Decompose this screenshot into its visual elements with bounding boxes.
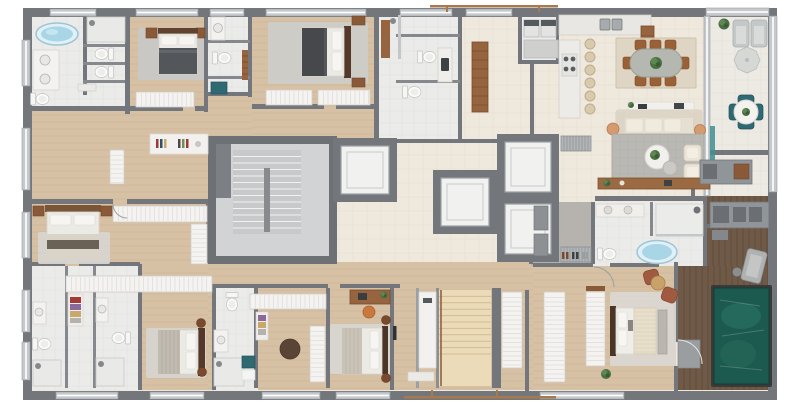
shoe-pair <box>586 252 589 259</box>
pouf <box>382 316 391 325</box>
glass-partition-teal <box>710 126 715 164</box>
outer-wall-bottom <box>23 391 777 400</box>
nightstand <box>146 28 157 38</box>
bed-pillow <box>332 31 342 50</box>
toilet <box>33 338 52 350</box>
bed-headboard <box>382 326 388 374</box>
wall <box>530 60 534 142</box>
elevator-2-cab <box>441 178 489 226</box>
wall-bath-divider <box>396 34 460 37</box>
shoe-pair <box>582 252 585 259</box>
wall-tv <box>393 326 397 340</box>
shower-glass <box>398 15 401 59</box>
pergola-line-bottom <box>404 396 556 399</box>
wall <box>525 290 529 391</box>
tv <box>638 104 647 109</box>
deck-step-platform <box>678 340 700 368</box>
pergola-tick <box>431 390 433 396</box>
wardrobe <box>502 292 522 368</box>
window <box>22 212 30 258</box>
bed-pillow <box>179 36 195 45</box>
grill-unit <box>749 207 762 222</box>
teal-cabinet <box>211 82 227 94</box>
side-round-table <box>663 161 677 175</box>
wardrobe <box>191 224 207 264</box>
wall-wc-divider <box>83 80 125 83</box>
nightstand <box>352 78 365 87</box>
sink-basin <box>40 74 50 84</box>
armchair-cushion <box>687 167 698 177</box>
wall <box>518 13 522 63</box>
wardrobe <box>544 292 565 382</box>
toilet <box>112 332 131 344</box>
hall-bench <box>408 372 434 381</box>
shower-head <box>390 18 396 24</box>
sofa-cushion <box>664 119 681 132</box>
window <box>22 128 30 190</box>
bed-blanket <box>634 308 656 354</box>
wardrobe <box>266 90 312 105</box>
hamper <box>242 370 255 380</box>
burner <box>571 67 576 72</box>
grill-unit <box>733 207 746 222</box>
side-table <box>607 123 619 135</box>
sink-basin <box>214 24 223 33</box>
folded-towel-purple <box>70 304 81 310</box>
bed-headboard <box>45 205 101 212</box>
bar-stool <box>585 52 595 62</box>
sideboard-plant <box>604 180 611 187</box>
grill-unit <box>713 206 729 223</box>
bed-headboard <box>344 26 351 78</box>
shower-head <box>216 361 222 367</box>
sink-basin-dark <box>441 58 449 71</box>
shoe-pair <box>566 252 569 259</box>
bed-duvet-fold <box>324 28 327 76</box>
wall <box>31 106 127 111</box>
balcony-rail-right <box>769 16 777 192</box>
sink-basin <box>35 308 43 316</box>
window <box>56 392 118 399</box>
wall <box>195 106 208 111</box>
wall <box>127 199 210 204</box>
balcony-rail-top <box>706 8 769 16</box>
dining-centerpiece-plant <box>650 57 662 69</box>
book <box>160 139 163 148</box>
bed-pillow <box>50 215 71 225</box>
wardrobe <box>113 206 207 222</box>
sofa-cushion <box>626 119 643 132</box>
console-decor <box>195 141 201 147</box>
towel-ladder <box>242 50 248 80</box>
bed-duvet <box>302 28 326 76</box>
wall-wc-divider <box>83 44 125 47</box>
wall-wc-divider <box>83 62 125 65</box>
grill-wood-cabinet <box>734 164 749 179</box>
shower-head <box>98 361 104 367</box>
utility-box <box>712 230 728 240</box>
sofa-back <box>616 110 702 118</box>
shower-glass <box>656 234 703 237</box>
bed-duvet <box>342 328 362 374</box>
bathtub-highlight <box>46 29 58 35</box>
bed-duvet <box>158 330 180 374</box>
private-stair-floor <box>439 290 491 386</box>
toilet <box>418 51 437 63</box>
folded-towel-red <box>70 297 81 303</box>
bathtub-water <box>642 244 672 260</box>
bed-pillow <box>332 52 342 71</box>
stair-core-wall-top <box>208 136 337 144</box>
pergola-tick <box>496 390 498 396</box>
toilet <box>95 48 114 60</box>
washer-top <box>524 20 539 26</box>
bed-throw <box>47 240 99 249</box>
window <box>262 392 320 399</box>
nightstand <box>33 206 44 216</box>
window <box>336 392 390 399</box>
wall-laundry <box>518 60 560 64</box>
vanity-counter <box>596 204 644 217</box>
folded-towel-tan <box>258 322 266 328</box>
wall <box>248 13 252 97</box>
window <box>136 9 198 16</box>
desk-chair <box>363 306 375 318</box>
plant-pot <box>601 369 611 379</box>
wall <box>326 288 330 388</box>
round-wood-table <box>651 276 665 290</box>
wall <box>458 13 462 142</box>
bed-pillow <box>370 331 379 349</box>
wardrobe <box>250 294 326 309</box>
folded-towel-gray <box>258 329 266 335</box>
wall-bath-divider <box>650 202 653 236</box>
pouf <box>197 319 206 328</box>
folded-towel-tan <box>70 311 81 317</box>
sideboard <box>598 178 710 189</box>
wall <box>533 263 593 267</box>
sink-basin <box>40 55 50 65</box>
wardrobe <box>586 292 605 366</box>
bar-stool <box>585 78 595 88</box>
toilet <box>598 248 617 260</box>
folded-towel-purple <box>258 315 266 321</box>
cabinet-handle <box>423 298 432 303</box>
wall <box>31 199 113 204</box>
book <box>156 139 159 148</box>
bed-pillow <box>74 215 95 225</box>
coffee-table-plant <box>650 150 660 160</box>
wardrobe <box>310 326 325 382</box>
book <box>186 139 189 148</box>
sink-basin <box>624 206 632 214</box>
bed-pillow <box>186 333 196 350</box>
wall <box>703 196 707 266</box>
sideboard-box <box>664 180 672 186</box>
console-plant <box>628 102 634 108</box>
bed-pillow <box>618 312 627 328</box>
shoe-pair <box>572 252 575 259</box>
toilet <box>226 293 238 312</box>
bed-headboard <box>610 306 616 356</box>
pergola-tick <box>538 7 540 12</box>
toilet <box>95 66 114 78</box>
wall <box>595 196 707 201</box>
pouf <box>382 374 391 383</box>
shower-head <box>89 20 95 26</box>
dryer-top <box>541 20 556 26</box>
wall <box>674 366 678 391</box>
window <box>466 9 512 16</box>
wardrobe <box>110 150 124 184</box>
folded-towel-gray <box>70 318 81 323</box>
round-rug <box>280 339 300 359</box>
window <box>22 342 30 380</box>
toilet <box>31 93 50 105</box>
bathtub-water <box>41 27 73 42</box>
window <box>150 392 204 399</box>
wall <box>212 284 328 288</box>
bed-headboard <box>158 28 198 34</box>
shoe-pair <box>576 252 579 259</box>
stair-core-utility <box>216 144 231 198</box>
bath-bench <box>78 84 96 91</box>
stair-rail <box>264 168 270 232</box>
window <box>50 9 96 16</box>
balcony-table-plant <box>742 108 750 116</box>
sink-basin <box>217 336 225 344</box>
burner <box>564 57 569 62</box>
bar-stool <box>585 104 595 114</box>
laptop <box>358 293 367 300</box>
book <box>182 139 185 148</box>
bed-bench <box>658 310 667 354</box>
bar-stool <box>585 39 595 49</box>
pouf <box>198 368 207 377</box>
bar-stool <box>585 91 595 101</box>
floor-plan-svg <box>0 0 800 408</box>
elevator-1-cab <box>341 146 389 194</box>
wall <box>436 288 439 388</box>
bed-pillow <box>186 352 196 369</box>
window <box>400 9 452 16</box>
book <box>178 139 181 148</box>
wardrobe <box>318 90 370 105</box>
bar-stool <box>585 65 595 75</box>
parasol-center <box>745 58 749 62</box>
toilet <box>403 86 422 98</box>
bed-pillow <box>370 351 379 369</box>
bed-pillow <box>161 36 177 45</box>
cooktop <box>562 54 577 76</box>
stair-core-wall-bottom <box>208 256 337 264</box>
wardrobe <box>66 276 212 292</box>
wall <box>340 284 400 288</box>
elevator-3-cab <box>505 142 551 192</box>
window <box>22 40 30 86</box>
wall <box>591 202 595 264</box>
window <box>266 9 366 16</box>
burner <box>564 67 569 72</box>
laundry-counter <box>524 40 558 58</box>
pool-glow <box>721 303 761 329</box>
sideboard-vase <box>620 181 625 186</box>
book <box>164 139 167 148</box>
hall-cabinet <box>419 292 436 368</box>
armchair-cushion <box>687 148 698 158</box>
wall <box>492 288 501 388</box>
kitchen-island <box>559 40 580 118</box>
lounge-chair-pad <box>754 26 764 44</box>
closet-cabinet <box>534 234 548 256</box>
sink-basin <box>98 305 106 313</box>
wall <box>125 13 130 114</box>
nightstand <box>101 206 112 216</box>
wall-bath-divider <box>208 40 250 43</box>
media-box <box>674 103 684 109</box>
closet-cabinet <box>534 206 548 230</box>
balcony-plant <box>719 19 730 30</box>
grill-unit <box>703 164 717 179</box>
floor-plan <box>0 0 800 408</box>
wardrobe-shelf <box>586 286 605 291</box>
pergola-tick <box>446 7 448 12</box>
shower-head <box>35 363 41 369</box>
shoe-pair <box>562 252 565 259</box>
stair-core-wall-left <box>208 136 216 264</box>
kitchen-sink <box>612 19 622 30</box>
teal-basket <box>242 356 255 368</box>
shower-head <box>694 207 701 214</box>
desk-plant <box>381 292 388 299</box>
window <box>22 290 30 332</box>
deck-side-table <box>733 268 742 277</box>
tv-console <box>628 102 694 110</box>
bed-duvet-fold <box>159 50 197 53</box>
pantry-cabinet <box>472 42 488 112</box>
kitchen-sink <box>600 19 610 30</box>
shower-bench <box>381 20 390 58</box>
burner <box>571 57 576 62</box>
wardrobe <box>136 92 194 107</box>
sofa-cushion <box>645 119 662 132</box>
pool-glow <box>720 340 756 368</box>
nightstand <box>352 16 365 25</box>
wall <box>374 13 379 142</box>
window <box>210 9 244 16</box>
lounge-chair-pad <box>736 26 746 44</box>
toilet <box>213 52 232 64</box>
bed-pillow <box>618 330 627 346</box>
bed-accent-pillow <box>628 320 633 331</box>
sink-basin <box>604 206 612 214</box>
